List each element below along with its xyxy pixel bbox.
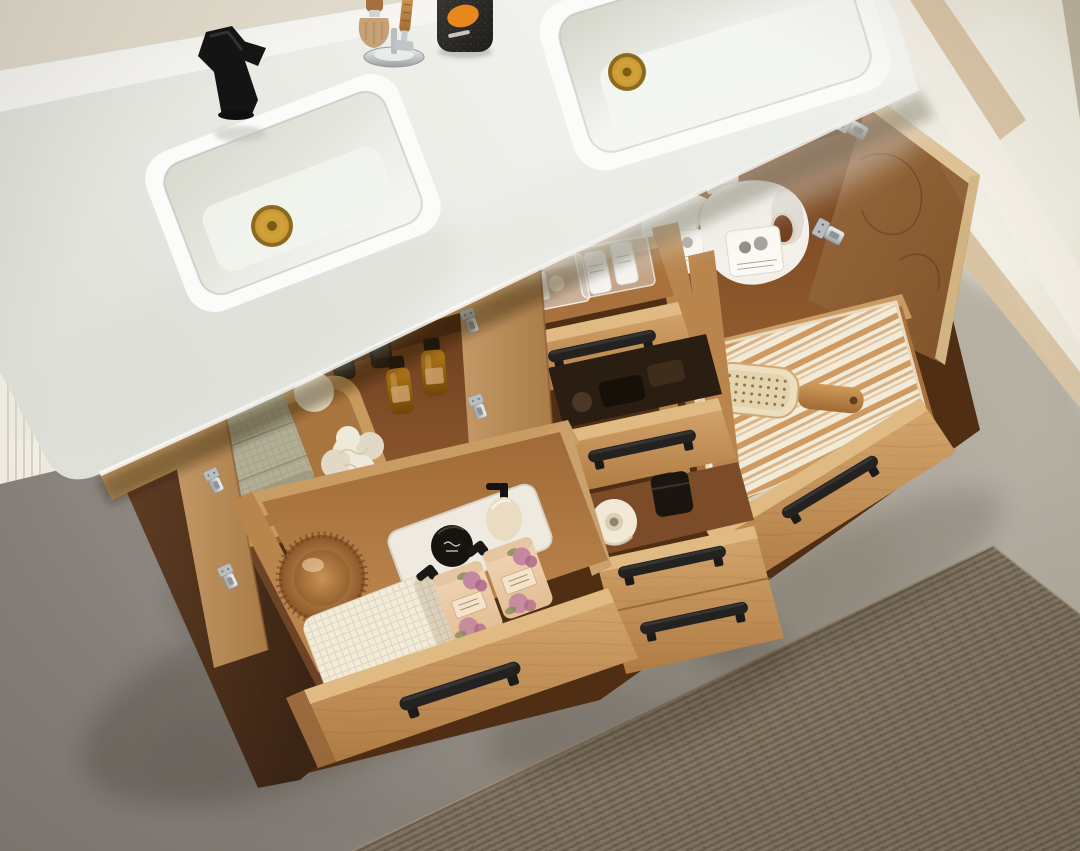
photo	[0, 0, 1080, 851]
scene-svg	[0, 0, 1080, 851]
vignette	[0, 0, 1080, 851]
